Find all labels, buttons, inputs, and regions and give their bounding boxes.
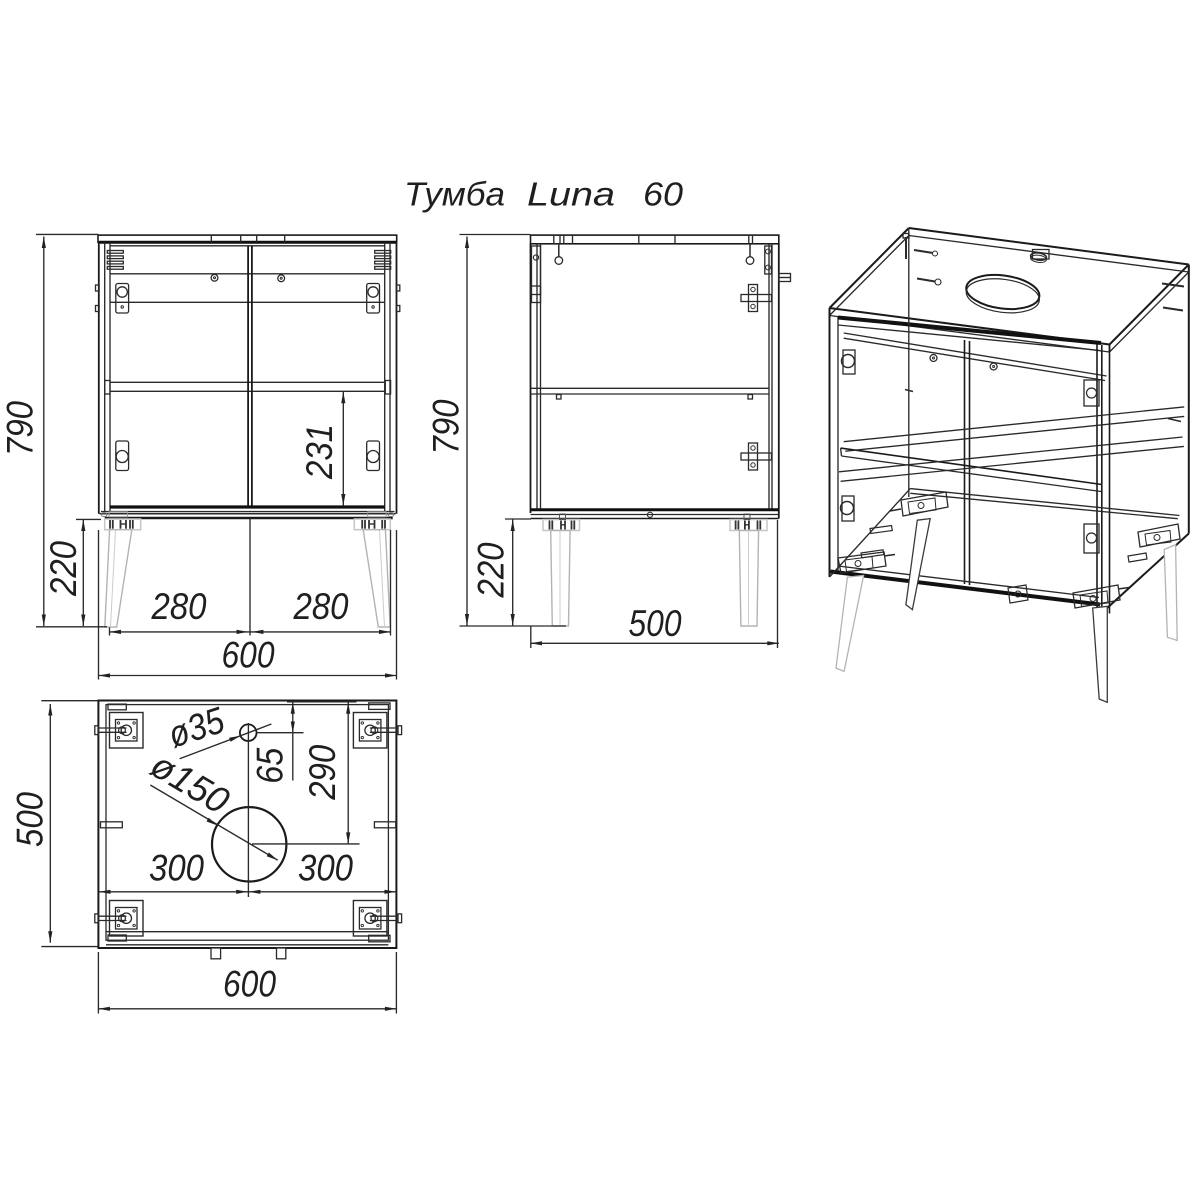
svg-text:790: 790 — [0, 401, 41, 456]
svg-text:600: 600 — [223, 964, 276, 1005]
svg-text:790: 790 — [426, 399, 467, 454]
svg-text:280: 280 — [293, 586, 349, 627]
svg-text:300: 300 — [149, 848, 204, 889]
svg-text:231: 231 — [299, 424, 340, 480]
svg-text:300: 300 — [298, 848, 353, 889]
svg-text:280: 280 — [151, 586, 207, 627]
svg-text:500: 500 — [629, 603, 682, 644]
svg-text:220: 220 — [43, 541, 84, 597]
svg-text:290: 290 — [302, 744, 343, 800]
svg-text:Тумба: Тумба — [404, 177, 505, 214]
svg-text:220: 220 — [471, 542, 512, 598]
svg-text:60: 60 — [643, 177, 683, 214]
svg-text:600: 600 — [222, 635, 275, 676]
svg-text:65: 65 — [249, 747, 290, 783]
svg-text:500: 500 — [10, 792, 51, 847]
svg-text:Luna: Luna — [527, 177, 615, 214]
